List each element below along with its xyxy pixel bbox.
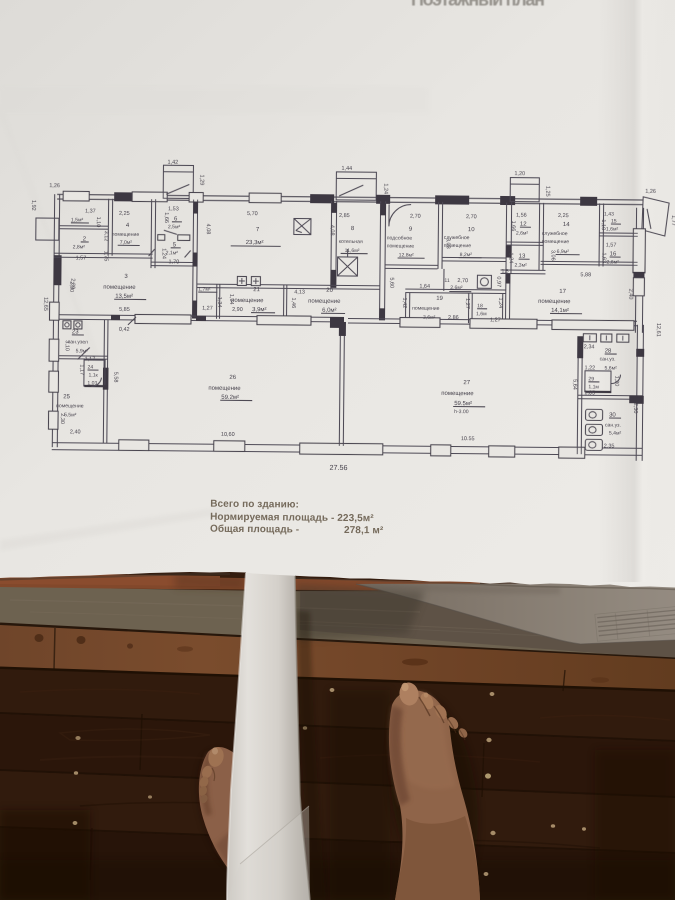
- svg-text:подсобное: подсобное: [387, 235, 413, 241]
- svg-text:10.55: 10.55: [461, 436, 475, 442]
- svg-text:помещение: помещение: [112, 232, 140, 238]
- svg-text:1,17: 1,17: [85, 356, 96, 362]
- svg-text:1,24: 1,24: [382, 183, 388, 194]
- svg-text:1,37: 1,37: [85, 208, 96, 214]
- svg-text:19: 19: [436, 296, 443, 302]
- svg-text:1,56: 1,56: [516, 213, 527, 219]
- svg-text:2,70: 2,70: [457, 278, 468, 284]
- svg-text:Поэтажный план: Поэтажный план: [411, 0, 545, 10]
- svg-text:1,92: 1,92: [30, 200, 36, 211]
- svg-text:1,34: 1,34: [228, 294, 234, 305]
- svg-text:5,6м²: 5,6м²: [605, 365, 618, 371]
- svg-text:помещение: помещение: [441, 391, 474, 397]
- svg-text:1,22: 1,22: [585, 365, 596, 371]
- svg-text:11: 11: [444, 278, 450, 284]
- svg-text:5,4м²: 5,4м²: [609, 431, 622, 437]
- svg-text:Общая площадь -: Общая площадь -: [210, 523, 299, 536]
- svg-text:2,6м²: 2,6м²: [516, 231, 529, 237]
- svg-text:3,10: 3,10: [64, 340, 70, 351]
- svg-text:5,85: 5,85: [119, 307, 130, 313]
- svg-text:2,40: 2,40: [627, 289, 633, 300]
- svg-text:2,6м²: 2,6м²: [450, 285, 463, 291]
- svg-text:5,9м²: 5,9м²: [76, 348, 89, 354]
- svg-text:помещение: помещение: [103, 285, 136, 291]
- svg-text:Нормируемая площадь - 223,5м²: Нормируемая площадь - 223,5м²: [210, 512, 374, 525]
- svg-text:1,10: 1,10: [600, 219, 606, 230]
- svg-text:27.56: 27.56: [330, 463, 348, 472]
- svg-text:0,97: 0,97: [495, 276, 501, 287]
- svg-text:2,40: 2,40: [70, 429, 81, 435]
- svg-text:14: 14: [563, 222, 570, 228]
- svg-text:котельная: котельная: [339, 239, 363, 245]
- svg-text:5,70: 5,70: [247, 211, 258, 217]
- svg-text:2,70: 2,70: [410, 214, 421, 220]
- svg-text:1,6м²: 1,6м²: [606, 226, 619, 232]
- svg-text:2,85: 2,85: [339, 213, 350, 219]
- svg-text:20: 20: [326, 288, 333, 294]
- svg-text:1,24: 1,24: [161, 248, 167, 259]
- svg-text:служебное: служебное: [542, 231, 568, 237]
- svg-text:2,35: 2,35: [604, 443, 615, 449]
- svg-text:2,30: 2,30: [68, 281, 74, 292]
- svg-text:17: 17: [559, 289, 566, 295]
- svg-text:2,30: 2,30: [632, 403, 638, 414]
- svg-text:2,6м²: 2,6м²: [607, 259, 620, 265]
- svg-text:1,8: 1,8: [501, 268, 508, 274]
- svg-text:3,12: 3,12: [103, 231, 109, 242]
- svg-text:1,29: 1,29: [198, 175, 204, 186]
- svg-text:1,66: 1,66: [510, 221, 516, 232]
- svg-text:помещение: помещение: [308, 299, 341, 305]
- svg-text:1,70: 1,70: [169, 259, 180, 265]
- svg-text:4,13: 4,13: [294, 289, 305, 295]
- svg-text:1,24: 1,24: [497, 297, 503, 308]
- svg-text:помещение: помещение: [56, 403, 84, 409]
- svg-text:1,42: 1,42: [401, 298, 407, 309]
- svg-text:помещение: помещение: [231, 298, 264, 304]
- svg-text:1,57: 1,57: [76, 255, 87, 261]
- svg-text:5,58: 5,58: [112, 372, 118, 383]
- svg-text:1,44: 1,44: [341, 166, 352, 172]
- svg-text:1,25: 1,25: [544, 186, 550, 197]
- svg-text:3,06: 3,06: [550, 250, 556, 261]
- svg-text:2,30: 2,30: [59, 413, 65, 424]
- svg-text:278,1 м²: 278,1 м²: [344, 525, 384, 536]
- svg-text:5,60: 5,60: [388, 277, 394, 288]
- svg-text:21: 21: [253, 287, 260, 293]
- svg-text:1,75: 1,75: [103, 251, 109, 262]
- svg-text:1,26: 1,26: [49, 183, 60, 189]
- svg-text:3,03: 3,03: [445, 238, 451, 249]
- svg-text:1,03: 1,03: [87, 381, 97, 387]
- svg-text:12,65: 12,65: [42, 297, 48, 311]
- svg-text:сан.уз.: сан.уз.: [600, 356, 616, 362]
- svg-text:сан.уз.: сан.уз.: [605, 422, 621, 428]
- svg-text:1,57: 1,57: [606, 242, 617, 248]
- svg-text:1,6м: 1,6м: [476, 311, 487, 317]
- svg-text:1,27: 1,27: [490, 317, 501, 323]
- svg-text:4,08: 4,08: [205, 224, 211, 235]
- svg-text:23,3м²: 23,3м²: [246, 240, 264, 246]
- svg-text:25: 25: [63, 394, 70, 400]
- svg-text:1,20: 1,20: [613, 376, 619, 387]
- svg-text:1,34: 1,34: [216, 297, 222, 308]
- svg-text:1,17: 1,17: [78, 364, 84, 375]
- svg-text:5,64: 5,64: [571, 379, 577, 390]
- svg-text:1,77: 1,77: [670, 215, 675, 226]
- svg-text:помещение: помещение: [538, 299, 571, 305]
- svg-text:2,34: 2,34: [584, 344, 595, 350]
- svg-text:помещение: помещение: [412, 306, 440, 312]
- svg-text:1,66: 1,66: [163, 212, 169, 223]
- svg-text:1,64: 1,64: [419, 284, 430, 290]
- svg-text:10: 10: [468, 227, 475, 233]
- svg-text:10,60: 10,60: [221, 432, 235, 438]
- svg-text:4,08: 4,08: [329, 225, 335, 236]
- svg-text:0,42: 0,42: [119, 327, 130, 333]
- svg-text:1,42: 1,42: [167, 160, 178, 166]
- svg-text:27: 27: [463, 380, 470, 386]
- svg-text:26: 26: [229, 375, 236, 381]
- svg-text:5,88: 5,88: [580, 272, 591, 278]
- svg-text:2,70: 2,70: [466, 214, 477, 220]
- svg-text:2,25: 2,25: [558, 213, 569, 219]
- svg-text:2,86: 2,86: [448, 315, 459, 321]
- svg-text:1,27: 1,27: [202, 306, 213, 312]
- svg-text:1,46: 1,46: [290, 297, 296, 308]
- svg-text:1,10: 1,10: [95, 217, 101, 228]
- svg-text:1,24: 1,24: [508, 253, 514, 264]
- svg-text:помещение: помещение: [542, 239, 570, 245]
- svg-text:Всего по зданию:: Всего по зданию:: [210, 499, 299, 511]
- svg-text:h-3.00: h-3.00: [454, 409, 469, 415]
- svg-text:2,3м²: 2,3м²: [515, 263, 528, 269]
- svg-text:1,63: 1,63: [601, 252, 607, 263]
- svg-text:1,1к: 1,1к: [88, 373, 98, 379]
- svg-text:2,90: 2,90: [232, 307, 243, 313]
- svg-text:1,27: 1,27: [464, 298, 470, 309]
- svg-text:1,20: 1,20: [514, 171, 525, 177]
- svg-text:1,26: 1,26: [645, 189, 656, 195]
- svg-text:2,5м²: 2,5м²: [168, 224, 181, 230]
- svg-text:2,25: 2,25: [119, 211, 130, 217]
- svg-text:2,8м²: 2,8м²: [73, 244, 86, 250]
- svg-text:3,6м²: 3,6м²: [423, 315, 436, 321]
- svg-text:помещение: помещение: [387, 243, 415, 249]
- svg-text:помещение: помещение: [208, 386, 241, 392]
- svg-text:12,61: 12,61: [655, 323, 661, 337]
- svg-text:1,05: 1,05: [584, 390, 595, 396]
- svg-text:1,43: 1,43: [604, 211, 614, 217]
